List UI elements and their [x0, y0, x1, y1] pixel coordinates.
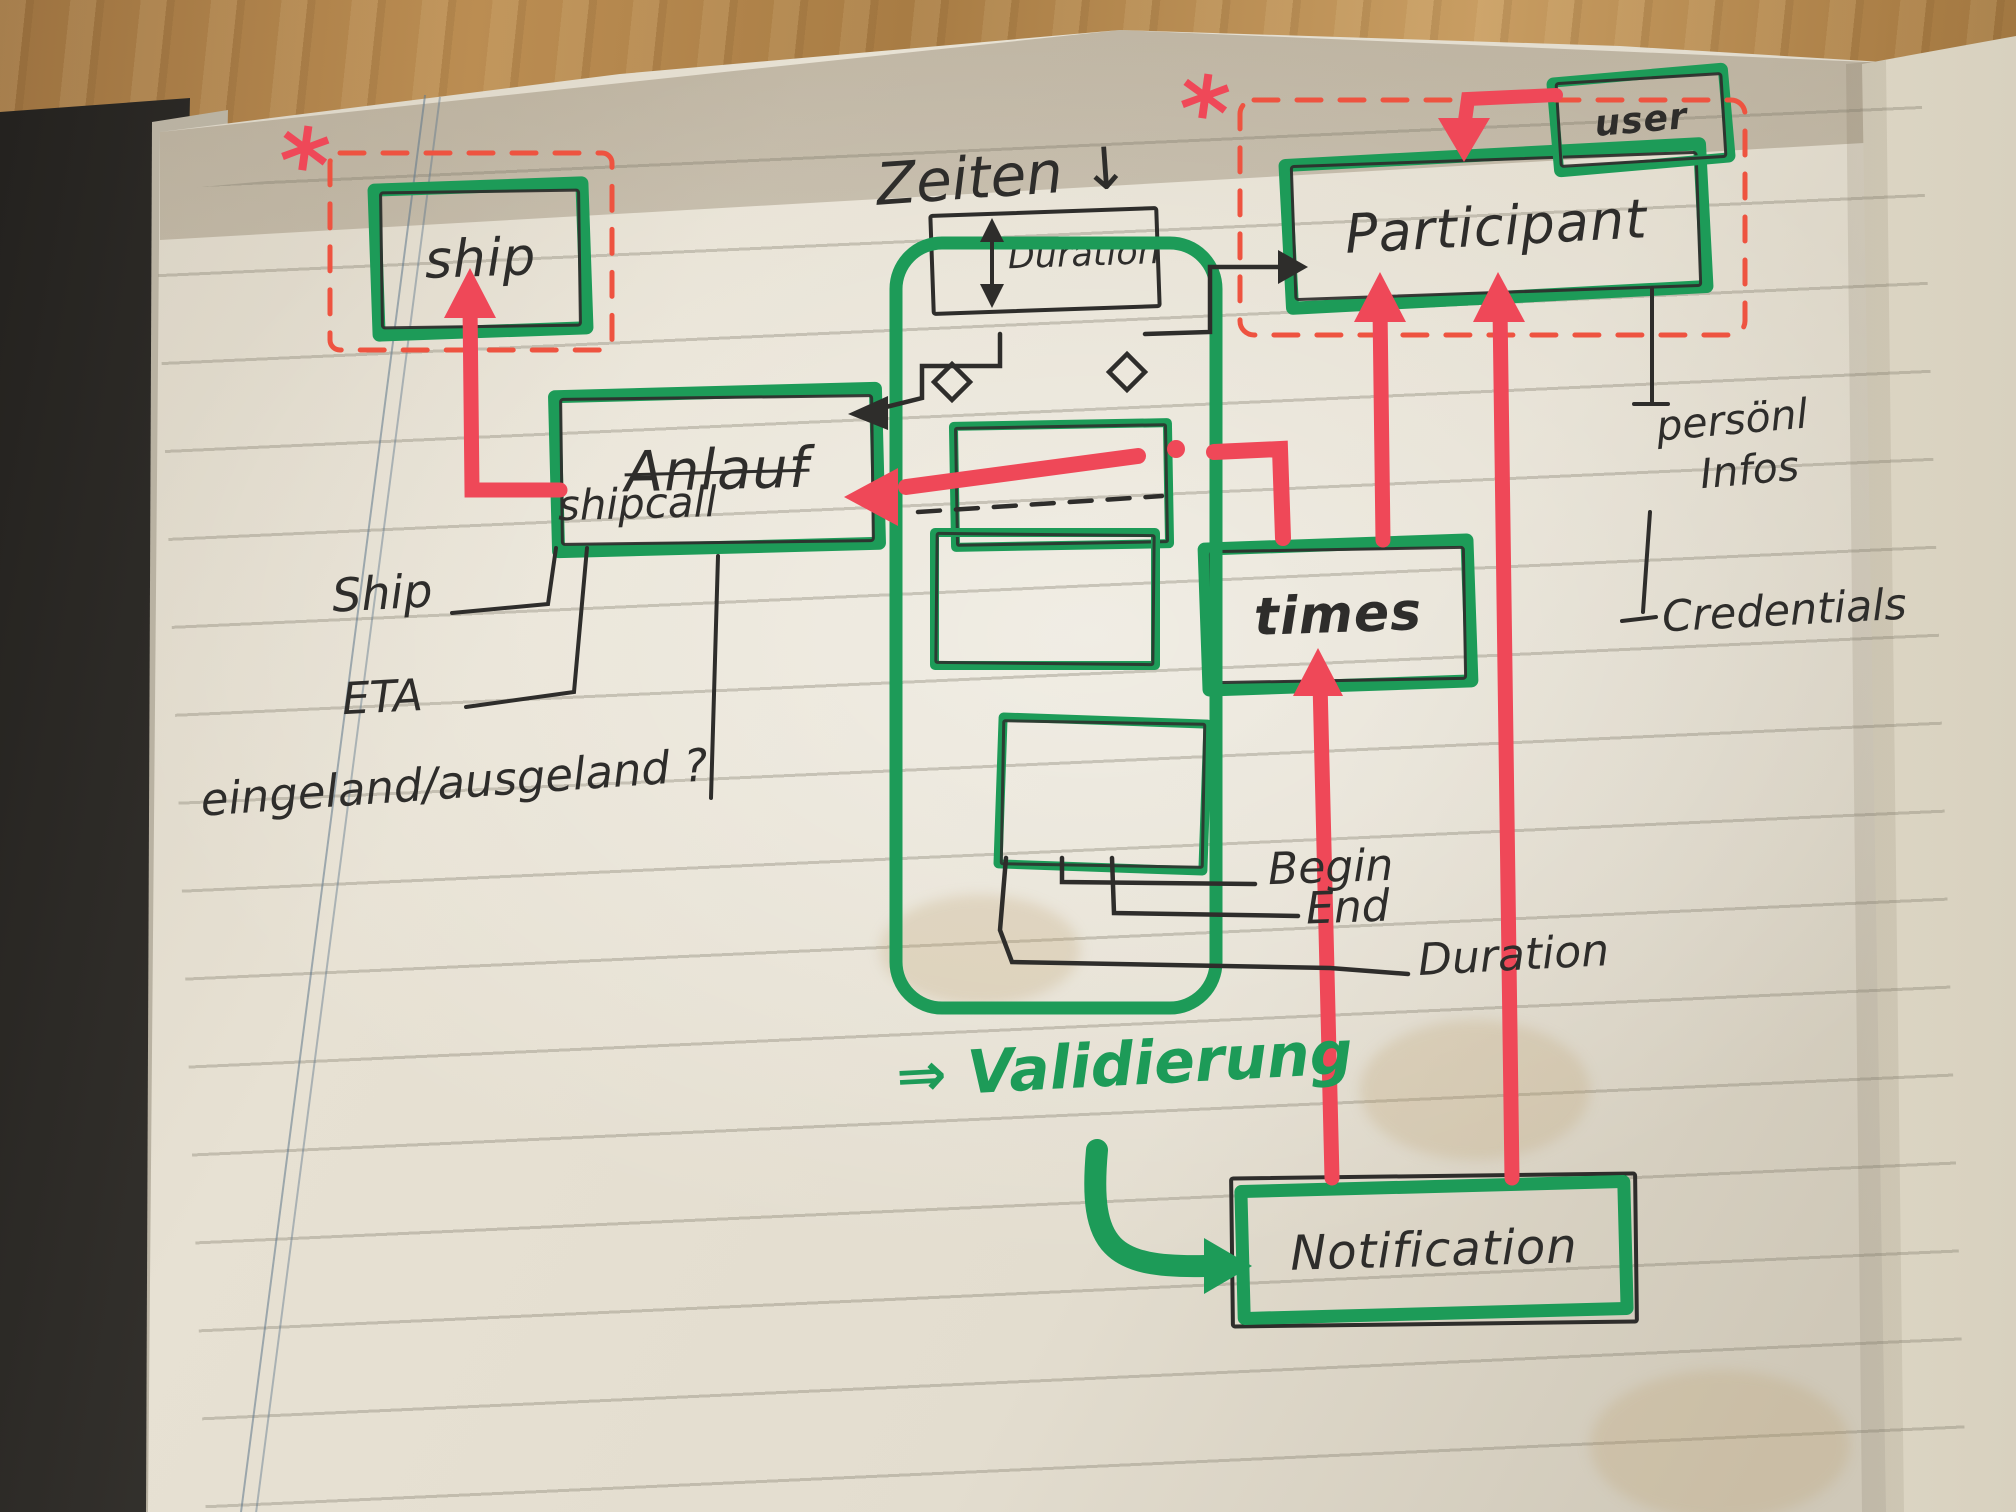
attr-ship-label: Ship	[331, 563, 434, 622]
red-asterisk-ship: *	[270, 105, 335, 223]
attr-persoenl-line2: Infos	[1698, 442, 1801, 498]
attr-end-label: End	[1305, 881, 1390, 935]
attr-credentials-label: Credentials	[1661, 580, 1908, 643]
attr-persoenl-line1: persönl	[1654, 389, 1810, 450]
validierung-annotation: ⇒ Validierung	[894, 1018, 1354, 1112]
notebook-photo: ship Anlauf shipcall Participant user ti…	[0, 0, 2016, 1512]
attr-inout-label: eingeland/ausgeland ?	[199, 738, 710, 826]
attr-eta-label: ETA	[341, 670, 424, 725]
zeiten-annotation: Zeiten ↓	[874, 133, 1132, 219]
red-asterisk-participant: *	[1170, 53, 1235, 171]
annotation-layer: * * Zeiten ↓ Ship ETA eingeland/ausgelan…	[0, 0, 2016, 1512]
attr-duration-label: Duration	[1417, 925, 1611, 986]
